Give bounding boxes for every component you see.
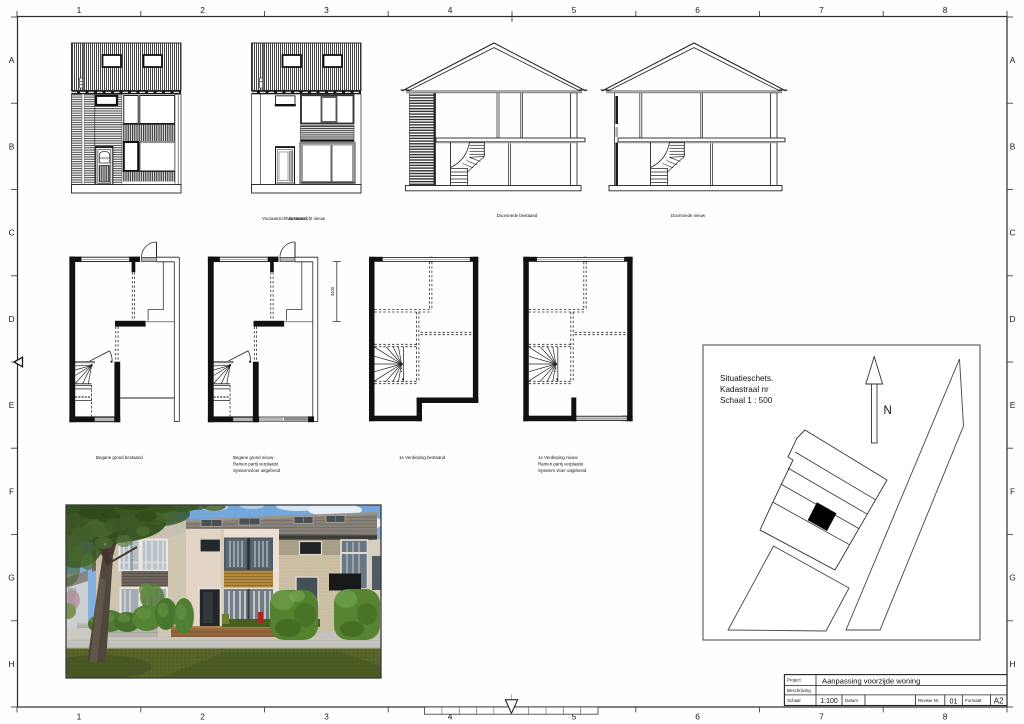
svg-text:D: D	[1009, 314, 1015, 324]
svg-text:Aanpassing voorzijde woning: Aanpassing voorzijde woning	[822, 676, 920, 685]
svg-text:Begane grond bestaand: Begane grond bestaand	[96, 455, 143, 460]
svg-text:1: 1	[77, 712, 82, 722]
svg-text:Schaal: Schaal	[787, 698, 800, 703]
svg-text:Project: Project	[787, 678, 801, 683]
svg-text:3400: 3400	[330, 286, 335, 296]
svg-text:Systeemvloer uitgebreid: Systeemvloer uitgebreid	[233, 468, 281, 473]
svg-text:5: 5	[572, 5, 577, 15]
svg-text:G: G	[1009, 573, 1016, 583]
svg-text:8: 8	[943, 712, 948, 722]
svg-text:Revisie Nr.: Revisie Nr.	[918, 698, 939, 703]
svg-text:6: 6	[695, 5, 700, 15]
svg-text:Begane grond nieuw: Begane grond nieuw	[233, 455, 274, 460]
svg-text:1e Verdieping nieuw: 1e Verdieping nieuw	[538, 455, 578, 460]
svg-text:7: 7	[819, 5, 824, 15]
svg-text:C: C	[1009, 228, 1015, 238]
svg-text:2: 2	[200, 5, 205, 15]
svg-text:Systeem vloer uitgebreid: Systeem vloer uitgebreid	[538, 468, 587, 473]
svg-text:8: 8	[943, 5, 948, 15]
svg-text:C: C	[8, 228, 14, 238]
svg-text:4: 4	[448, 5, 453, 15]
svg-text:1e Verdieping bestaand: 1e Verdieping bestaand	[399, 455, 446, 460]
svg-text:1:100: 1:100	[820, 698, 838, 705]
svg-text:Kadastraal nr: Kadastraal nr	[720, 385, 769, 394]
svg-text:01: 01	[950, 696, 958, 705]
svg-text:6: 6	[695, 712, 700, 722]
svg-text:A: A	[9, 55, 15, 65]
svg-text:A: A	[1010, 55, 1016, 65]
svg-text:Beschrijving: Beschrijving	[787, 688, 811, 693]
svg-text:B: B	[9, 141, 15, 151]
svg-text:B: B	[1010, 141, 1016, 151]
svg-text:Schaal 1 : 500: Schaal 1 : 500	[720, 396, 773, 405]
svg-text:Datum: Datum	[845, 698, 858, 703]
svg-text:D: D	[8, 314, 14, 324]
svg-text:H: H	[1009, 659, 1015, 669]
svg-text:N: N	[884, 405, 892, 417]
svg-text:Doorsnede nieuw: Doorsnede nieuw	[671, 213, 706, 218]
svg-text:Doorsnede bestaand: Doorsnede bestaand	[497, 213, 538, 218]
svg-text:H: H	[8, 659, 14, 669]
svg-text:G: G	[8, 573, 15, 583]
svg-text:Ramen partij verplaatst: Ramen partij verplaatst	[538, 462, 584, 467]
svg-text:F: F	[9, 486, 14, 496]
svg-text:F: F	[1010, 486, 1015, 496]
svg-text:7: 7	[819, 712, 824, 722]
svg-text:3: 3	[324, 5, 329, 15]
svg-text:2: 2	[200, 712, 205, 722]
svg-text:A2: A2	[994, 697, 1004, 706]
svg-text:3: 3	[324, 712, 329, 722]
svg-text:1: 1	[77, 5, 82, 15]
svg-text:Situatieschets.: Situatieschets.	[720, 374, 773, 383]
svg-text:Vooraanzicht nieuw: Vooraanzicht nieuw	[287, 216, 326, 221]
svg-text:Formaat: Formaat	[965, 698, 982, 703]
svg-text:E: E	[9, 400, 15, 410]
svg-text:E: E	[1010, 400, 1016, 410]
svg-text:Ramen partij verplaatst: Ramen partij verplaatst	[233, 462, 279, 467]
